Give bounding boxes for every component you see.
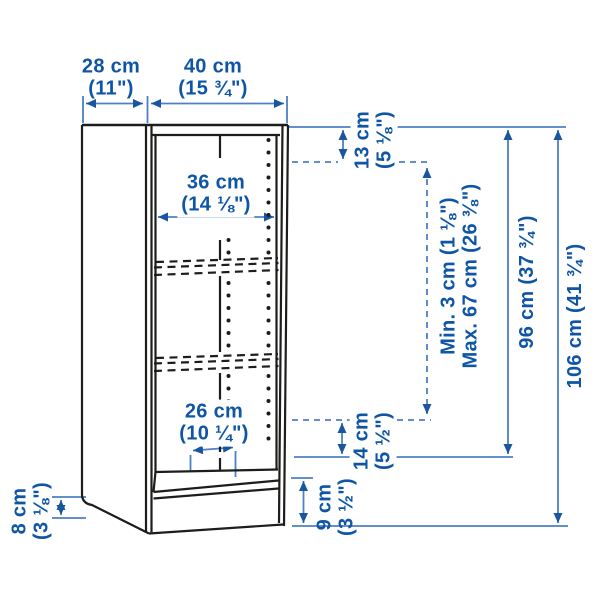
adjustable-shelf-upper <box>154 258 279 275</box>
inner-width-inches: (14 ⅛") <box>181 194 250 216</box>
bottom-gap-inches: (5 ½") <box>373 412 395 470</box>
inner-height-value: 96 cm (37 ¾") <box>516 215 538 348</box>
left-back-edge <box>82 125 149 534</box>
shelf-spacing-min: Min. 3 cm (1 ⅛") <box>438 184 460 369</box>
depth-label: 28 cm (11") <box>82 56 140 101</box>
inner-depth-label: 26 cm (10 ¼") <box>175 400 252 447</box>
bottom-gap-cm: 14 cm <box>351 412 373 470</box>
dimension-lines <box>52 96 568 526</box>
skirting-cutout-label: 8 cm (3 ⅛") <box>9 482 54 540</box>
width-label: 40 cm (15 ¾") <box>178 56 247 101</box>
width-cm: 40 cm <box>178 56 247 78</box>
top-gap-inches: (5 ⅛") <box>374 111 396 169</box>
dimension-diagram: 28 cm (11") 40 cm (15 ¾") 36 cm (14 ⅛") … <box>0 0 600 600</box>
cutout-inches: (3 ⅛") <box>31 482 53 540</box>
shelf-spacing-label: Min. 3 cm (1 ⅛") Max. 67 cm (26 ⅜") <box>438 184 483 369</box>
inner-depth-cm: 26 cm <box>179 401 248 423</box>
plinth-cm: 9 cm <box>314 478 336 536</box>
right-outer-edge <box>284 125 288 526</box>
total-height-value: 106 cm (41 ¾") <box>564 244 586 389</box>
left-frame-edge <box>146 125 152 533</box>
plinth-height-label: 9 cm (3 ½") <box>314 478 359 536</box>
plinth-bottom-edge <box>149 525 283 534</box>
inner-depth-extension-lines <box>191 451 236 477</box>
width-inches: (15 ¾") <box>178 78 247 100</box>
depth-inches: (11") <box>82 78 140 100</box>
total-height-label: 106 cm (41 ¾") <box>564 244 586 389</box>
depth-cm: 28 cm <box>82 56 140 78</box>
inner-height-label: 96 cm (37 ¾") <box>516 215 538 348</box>
plinth-inches: (3 ½") <box>336 478 358 536</box>
top-gap-cm: 13 cm <box>352 111 374 169</box>
bottom-shelf <box>154 470 279 499</box>
inner-depth-arrow <box>193 448 233 451</box>
right-frame-edge <box>279 125 283 523</box>
cutout-extension-lines <box>52 497 86 518</box>
inner-width-cm: 36 cm <box>181 172 250 194</box>
inner-depth-inches: (10 ¼") <box>179 423 248 445</box>
shelf-spacing-max: Max. 67 cm (26 ⅜") <box>460 184 482 369</box>
inner-width-label: 36 cm (14 ⅛") <box>177 171 254 218</box>
adjustable-shelf-lower <box>154 354 279 371</box>
bottom-gap-label: 14 cm (5 ½") <box>350 408 397 474</box>
top-gap-label: 13 cm (5 ⅛") <box>351 107 398 173</box>
cutout-cm: 8 cm <box>9 482 31 540</box>
